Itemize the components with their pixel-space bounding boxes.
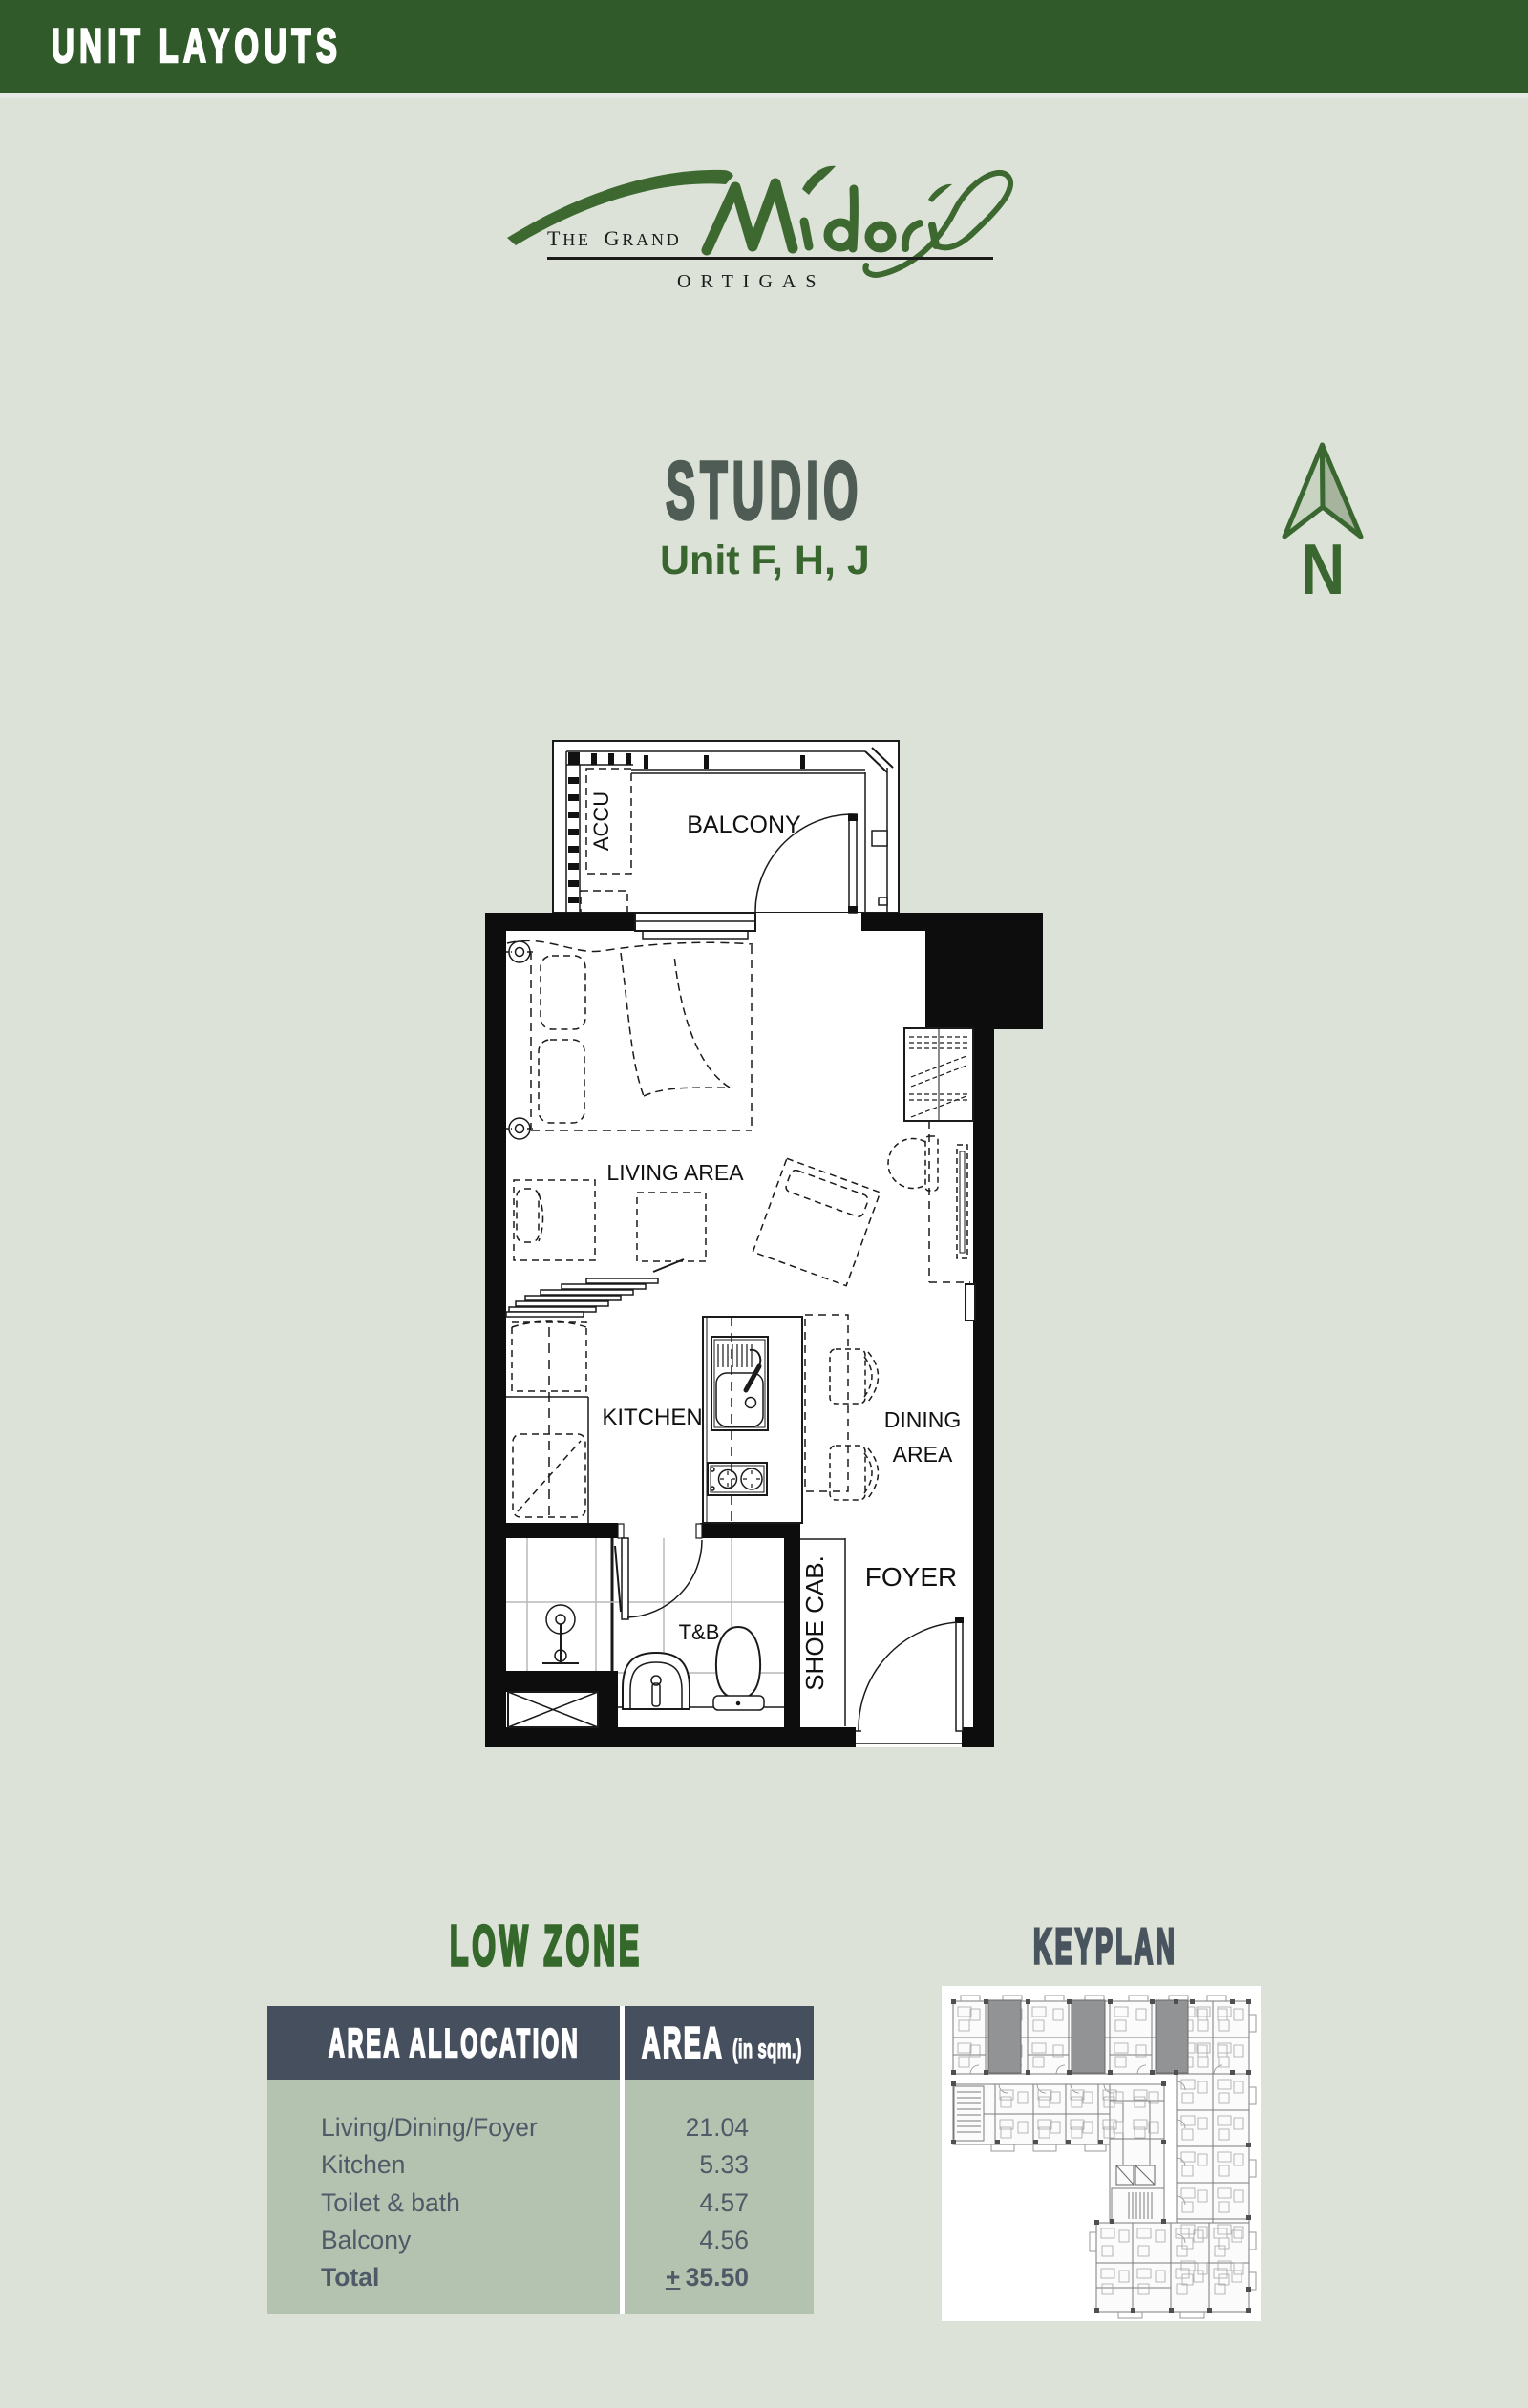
svg-text:KITCHEN: KITCHEN [602,1405,702,1430]
svg-text:LIVING AREA: LIVING AREA [606,1160,744,1185]
svg-text:BALCONY: BALCONY [687,812,801,838]
svg-text:SHOE CAB.: SHOE CAB. [800,1555,829,1691]
svg-text:DINING: DINING [884,1407,962,1432]
svg-text:T&B: T&B [679,1620,720,1644]
svg-text:AREA: AREA [893,1442,953,1467]
svg-text:ACCU: ACCU [589,792,613,851]
svg-text:FOYER: FOYER [865,1562,957,1592]
